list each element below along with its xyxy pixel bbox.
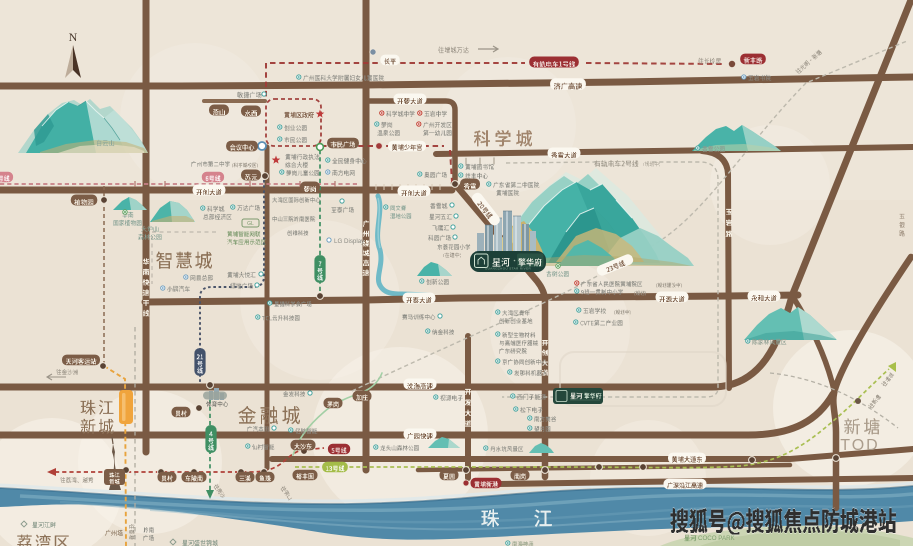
svg-text:COCO PARK: COCO PARK: [698, 535, 736, 542]
svg-text:GUANGZHOU STAR RIVER: GUANGZHOU STAR RIVER: [485, 267, 532, 271]
svg-text:GL: GL: [247, 221, 254, 227]
svg-text:TOD: TOD: [840, 437, 879, 454]
svg-text:LG Display: LG Display: [334, 238, 365, 245]
svg-text:N: N: [69, 30, 78, 44]
